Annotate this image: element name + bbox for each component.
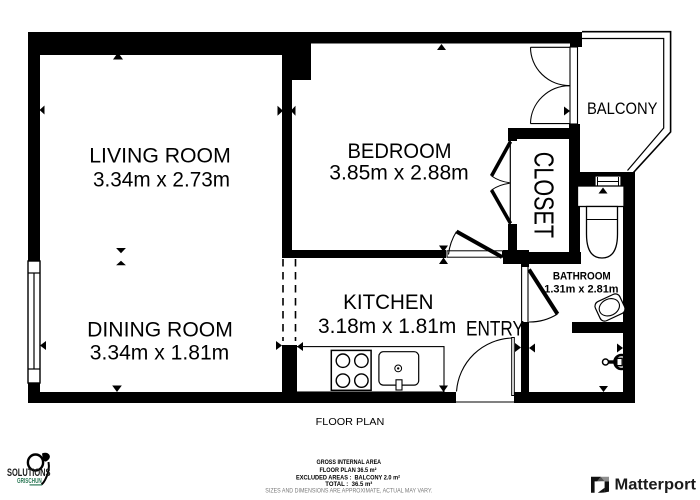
svg-text:3.34m x 1.81m: 3.34m x 1.81m	[90, 340, 230, 364]
svg-text:BALCONY: BALCONY	[587, 100, 658, 118]
svg-text:3.34m x 2.73m: 3.34m x 2.73m	[93, 167, 230, 191]
svg-text:KITCHEN: KITCHEN	[343, 290, 433, 314]
svg-text:BEDROOM: BEDROOM	[348, 139, 452, 163]
svg-text:Matterport: Matterport	[615, 477, 697, 494]
svg-text:GROSS INTERNAL AREA: GROSS INTERNAL AREA	[317, 459, 382, 466]
svg-text:ENTRY: ENTRY	[466, 317, 524, 341]
svg-text:3.18m x 1.81m: 3.18m x 1.81m	[318, 314, 456, 338]
svg-text:BATHROOM: BATHROOM	[553, 270, 611, 282]
svg-text:CLOSET: CLOSET	[529, 152, 560, 238]
svg-text:3.85m x 2.88m: 3.85m x 2.88m	[329, 161, 469, 185]
svg-text:GRISCHUN: GRISCHUN	[17, 476, 42, 485]
svg-text:LIVING ROOM: LIVING ROOM	[89, 144, 231, 168]
svg-text:SIZES AND DIMENSIONS ARE APPRO: SIZES AND DIMENSIONS ARE APPROXIMATE, AC…	[265, 488, 432, 495]
svg-text:FLOOR PLAN 36.5 m²: FLOOR PLAN 36.5 m²	[320, 467, 377, 474]
svg-text:DINING ROOM: DINING ROOM	[87, 318, 233, 342]
svg-text:1.31m x 2.81m: 1.31m x 2.81m	[544, 284, 619, 296]
svg-text:FLOOR PLAN: FLOOR PLAN	[316, 417, 385, 428]
